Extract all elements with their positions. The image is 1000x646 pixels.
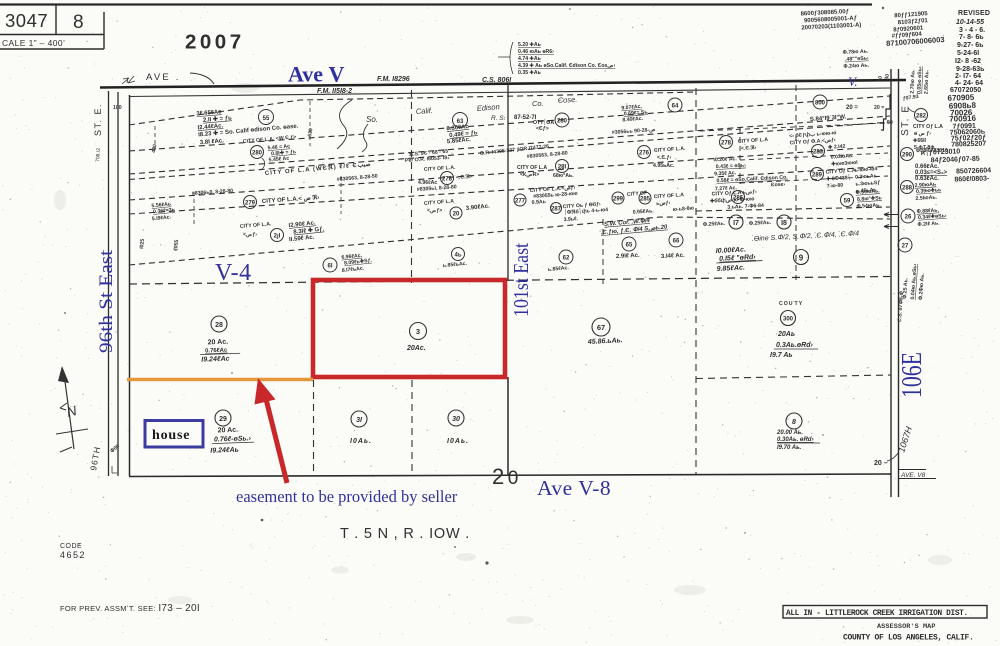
- svg-text:3047: 3047: [5, 10, 48, 31]
- svg-text:COUNTY OF LOS ANGELES, CALIF.: COUNTY OF LOS ANGELES, CALIF.: [843, 634, 974, 643]
- svg-text:278: 278: [442, 177, 453, 183]
- svg-text:0.05ю өSь›: 0.05ю өSь›: [917, 66, 924, 94]
- svg-text:2յI: 2յI: [274, 234, 281, 240]
- svg-text:0.9ֿAь: 0.9ֿAь: [531, 199, 546, 206]
- svg-text:287: 287: [551, 207, 562, 213]
- svg-text:27: 27: [902, 244, 909, 250]
- svg-text:4.74 ✚Aь: 4.74 ✚Aь: [518, 56, 541, 62]
- svg-text:I9.24ℓAc: I9.24ℓAc: [201, 356, 229, 364]
- svg-text:<ֿصƒ›: <ֿصƒ›: [242, 232, 257, 238]
- svg-text:20.00 Aь.: 20.00 Aь.: [776, 430, 803, 436]
- svg-text:280: 280: [557, 119, 568, 125]
- svg-text:I0.20ℓ Ac.: I0.20ℓ Ac.: [713, 156, 737, 163]
- svg-text:101st East: 101st East: [509, 243, 533, 317]
- svg-text:V.: V.: [848, 74, 858, 89]
- svg-text:F.M. II5I8-2: F.M. II5I8-2: [317, 88, 352, 95]
- svg-text:68ю°Aь.: 68ю°Aь.: [553, 173, 574, 179]
- svg-text:I8: I8: [781, 220, 787, 227]
- svg-text:I2- 8 -62: I2- 8 -62: [955, 58, 981, 65]
- svg-text:C.S. 806I: C.S. 806I: [482, 77, 512, 84]
- svg-text:Փ.25ℓAь.: Փ.25ℓAь.: [703, 221, 726, 228]
- svg-text:CITY Oƒ L.A: CITY Oƒ L.A: [913, 124, 943, 130]
- svg-text:<ֿصƒ>: <ֿصƒ>: [426, 208, 442, 214]
- svg-text:CITY OF L.A: CITY OF L.A: [517, 165, 547, 171]
- svg-text:3.9ֿьℓ.: 3.9ֿьℓ.: [563, 216, 578, 223]
- svg-text:R. S.: R. S.: [491, 115, 506, 122]
- svg-text:Єose.: Єose.: [558, 95, 578, 105]
- svg-text:REVISED: REVISED: [958, 10, 990, 17]
- svg-text:283: 283: [813, 150, 824, 156]
- svg-text:8: 8: [73, 12, 84, 33]
- svg-text:I0Aь.: I0Aь.: [350, 438, 372, 445]
- svg-text:7-ֿю-80: 7-ֿю-80: [826, 182, 843, 189]
- svg-text:<ֿ.Є.ƒ›: <ֿ.Є.ƒ›: [656, 155, 671, 161]
- svg-text:Ave V-8: Ave V-8: [537, 476, 611, 500]
- svg-text:300: 300: [783, 317, 794, 323]
- svg-text:289: 289: [812, 173, 823, 179]
- svg-text:<ֿ.Є.ℜ›: <ֿ.Є.ℜ›: [740, 145, 757, 152]
- svg-text:.48ʺʺөSь›: .48ʺʺөSь›: [845, 55, 869, 63]
- svg-text:T . 5 N , R . IOW .: T . 5 N , R . IOW .: [340, 526, 470, 542]
- svg-text:4- 24- 64: 4- 24- 64: [955, 80, 983, 87]
- svg-text:280: 280: [252, 151, 263, 157]
- svg-text:10-14-55: 10-14-55: [956, 19, 984, 26]
- svg-text:I025: I025: [139, 238, 146, 249]
- svg-text:4.95ьAc.: 4.95ьAc.: [653, 163, 675, 169]
- svg-text:282: 282: [916, 114, 927, 120]
- svg-text:COUֿTY: COUֿTY: [779, 301, 803, 307]
- svg-text:5.20 ✚Aь: 5.20 ✚Aь: [518, 42, 541, 48]
- svg-text:I9.24ℓAь: I9.24ℓAь: [210, 447, 239, 455]
- svg-text:4ь: 4ь: [454, 253, 461, 259]
- svg-text:AVE .: AVE .: [146, 72, 181, 83]
- svg-text:Ave V: Ave V: [288, 62, 345, 87]
- svg-text:67: 67: [597, 323, 605, 332]
- svg-text:I7: I7: [733, 220, 739, 227]
- svg-text:0.46 юAь өR6›: 0.46 юAь өR6›: [518, 49, 554, 55]
- svg-text:299: 299: [613, 197, 624, 203]
- svg-text:OTT׀ӨA: OTT׀ӨA: [533, 118, 554, 126]
- svg-text:ASSESSORʼS MAP: ASSESSORʼS MAP: [877, 623, 936, 631]
- svg-text:AVE. V8: AVE. V8: [900, 472, 926, 479]
- svg-text:60: 60: [877, 76, 884, 83]
- svg-text:65: 65: [626, 243, 633, 249]
- svg-text:55: 55: [263, 116, 270, 122]
- svg-text:<КصR>: <КصR>: [520, 172, 539, 178]
- svg-text:I9.7 Aь: I9.7 Aь: [770, 352, 793, 359]
- svg-text:20Ac.: 20Ac.: [406, 345, 426, 352]
- svg-text:708.I2: 708.I2: [95, 148, 102, 163]
- svg-text:9: 9: [799, 254, 804, 263]
- svg-text:20Aь: 20Aь: [777, 331, 795, 338]
- svg-text:3.I4ℓ Ac.: 3.I4ℓ Ac.: [661, 253, 685, 260]
- svg-text:276: 276: [639, 151, 650, 157]
- svg-text:20: 20: [492, 464, 522, 489]
- svg-text:850726604: 850726604: [956, 167, 991, 175]
- svg-text:CODE: CODE: [60, 543, 82, 550]
- svg-text:29: 29: [219, 416, 227, 423]
- svg-text:28: 28: [215, 322, 223, 329]
- svg-text:V-4: V-4: [215, 260, 252, 286]
- svg-text:26: 26: [905, 215, 912, 221]
- svg-text:2- I7- 64: 2- I7- 64: [955, 73, 981, 80]
- svg-text:Co.: Co.: [532, 99, 544, 108]
- svg-text:2ֿ0: 2ֿ0: [453, 211, 460, 218]
- svg-text:279: 279: [245, 201, 256, 207]
- svg-text:So.: So.: [366, 115, 378, 124]
- svg-text:5-Փ7-8Փ: 5-Փ7-8Փ: [914, 145, 935, 151]
- svg-text:ST. E.: ST. E.: [93, 103, 103, 136]
- svg-text:6I: 6I: [327, 264, 332, 270]
- svg-text:0.30Aь. өRd›: 0.30Aь. өRd›: [777, 437, 814, 443]
- svg-text:30: 30: [884, 74, 891, 81]
- svg-text:9-28-63ь: 9-28-63ь: [956, 66, 985, 73]
- svg-text:2.9Iℓ Ac.: 2.9Iℓ Ac.: [616, 253, 640, 260]
- svg-text:4.39 ✚ Aь өSo.Calif. Єdison Co: 4.39 ✚ Aь өSo.Calif. Єdison Co. Єosص›: [518, 63, 616, 69]
- svg-text:ьֿصƒ›: ьֿصƒ›: [656, 200, 671, 207]
- svg-text:2.65ю Aь.: 2.65ю Aь.: [924, 69, 931, 94]
- svg-text:✚6ֿ6II: ✚6ֿ6II: [913, 138, 927, 144]
- svg-text:9.35ℓ Ac.: 9.35ℓ Ac.: [714, 170, 737, 177]
- svg-text:өֿ ص ƒ›: өֿ ص ƒ›: [914, 131, 931, 137]
- svg-text:278: 278: [721, 141, 732, 147]
- svg-text:I9.70 Aь.: I9.70 Aь.: [777, 445, 802, 451]
- svg-text:30: 30: [452, 416, 460, 423]
- svg-text:100: 100: [113, 105, 122, 111]
- svg-text:I0Aь.: I0Aь.: [447, 438, 469, 445]
- svg-text:7- 8- 6ь: 7- 8- 6ь: [959, 34, 984, 41]
- svg-text:285: 285: [640, 197, 651, 203]
- svg-text:house: house: [152, 428, 190, 443]
- svg-text:Calif.: Calif.: [416, 106, 434, 116]
- svg-text:2007: 2007: [185, 31, 245, 54]
- svg-text:Єose›: Єose›: [771, 182, 786, 189]
- svg-text:ℓ055: ℓ055: [173, 239, 180, 252]
- svg-text:✚ 2.I42: ✚ 2.I42: [828, 144, 846, 151]
- svg-text:277: 277: [515, 199, 526, 205]
- svg-text:66: 66: [673, 239, 680, 245]
- svg-text:28I: 28I: [558, 165, 567, 171]
- svg-text:20 Ac.: 20 Ac.: [208, 339, 229, 347]
- svg-text:288: 288: [902, 186, 913, 192]
- svg-text:F.M. I8296: F.M. I8296: [377, 76, 410, 83]
- svg-text:800: 800: [815, 101, 826, 107]
- svg-text:<ֿ.Є.ℜ>: <ֿ.Є.ℜ>: [455, 174, 473, 181]
- svg-text:106E: 106E: [896, 352, 928, 398]
- svg-text:<ֿЄƒ>: <ֿЄƒ>: [535, 126, 549, 132]
- svg-text:62: 62: [563, 256, 570, 262]
- svg-text:3: 3: [416, 327, 420, 336]
- svg-text:9.85ℓAc.: 9.85ℓAc.: [717, 265, 746, 273]
- svg-text:easement to be provided by sel: easement to be provided by seller: [236, 487, 458, 506]
- svg-text:5-24-6I: 5-24-6I: [957, 50, 979, 57]
- svg-text:Փ.25ℓAь.: Փ.25ℓAь.: [749, 220, 772, 227]
- svg-text:50: 50: [887, 120, 893, 126]
- svg-text:860ℓ/0803-: 860ℓ/0803-: [954, 175, 990, 183]
- svg-text:290: 290: [902, 153, 913, 159]
- svg-text:3 - 4 - 6.: 3 - 4 - 6.: [959, 27, 985, 34]
- svg-text:20 =: 20 =: [846, 105, 858, 111]
- svg-text:780825207: 780825207: [951, 140, 986, 148]
- svg-text:ALL IN - LITTLEROCK CREEK IRRI: ALL IN - LITTLEROCK CREEK IRRIGATION DIS…: [786, 610, 968, 618]
- svg-text:FOR PREV. ASSMʼT. SEE: I73: FOR PREV. ASSMʼT. SEE: I73 – 20I: [60, 603, 200, 614]
- svg-text:96th St East: 96th St East: [96, 249, 117, 353]
- svg-text:0.3Aь.өRd›: 0.3Aь.өRd›: [776, 342, 813, 349]
- svg-text:4652: 4652: [60, 550, 86, 560]
- svg-text:2.70ю Aь.: 2.70ю Aь.: [910, 69, 917, 94]
- svg-text:0.35 ✚Aь: 0.35 ✚Aь: [518, 70, 541, 76]
- svg-text:20 =: 20 =: [874, 105, 884, 111]
- svg-text:9-27- 6ь: 9-27- 6ь: [957, 42, 984, 49]
- svg-text:CALE 1” – 400’: CALE 1” – 400’: [2, 38, 65, 48]
- svg-text:20 Ac.: 20 Ac.: [218, 427, 239, 435]
- svg-text:20 –: 20 –: [874, 460, 888, 467]
- svg-text:59: 59: [844, 199, 851, 205]
- svg-text:8: 8: [792, 419, 796, 426]
- svg-text:64: 64: [672, 104, 679, 110]
